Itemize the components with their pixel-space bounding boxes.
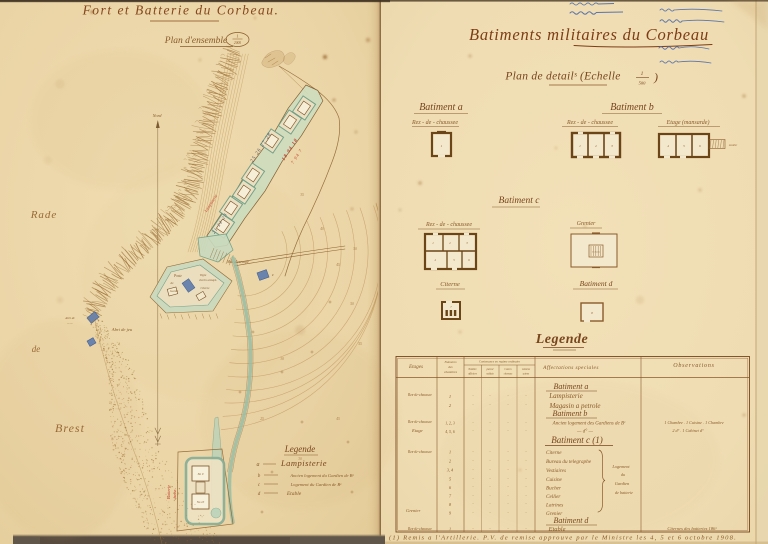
svg-text:Grenier: Grenier (577, 221, 596, 227)
svg-text:Brest: Brest (55, 421, 85, 435)
svg-text:chevaux: chevaux (504, 373, 513, 376)
svg-text:No 9: No 9 (197, 472, 204, 476)
svg-text:2: 2 (449, 459, 451, 464)
svg-text:Cellier: Cellier (546, 494, 561, 500)
svg-text:electro-semaph.: electro-semaph. (199, 279, 217, 282)
svg-text:Citerne: Citerne (440, 281, 460, 288)
svg-text:Batiment a: Batiment a (554, 382, 589, 391)
svg-text:Grenier: Grenier (406, 508, 421, 513)
svg-text:6: 6 (699, 144, 701, 148)
svg-text:soldats: soldats (486, 373, 493, 376)
svg-text:): ) (653, 70, 658, 84)
svg-text:du: du (621, 472, 625, 477)
svg-text:Mur d'escarpe: Mur d'escarpe (226, 260, 249, 264)
svg-text:1: 1 (236, 34, 238, 39)
svg-text:Batiments militaires du Cor: Batiments militaires du Corbeau (469, 25, 709, 44)
svg-text:Poste: Poste (173, 274, 182, 278)
svg-text:chambres: chambres (444, 370, 458, 374)
svg-text:25: 25 (260, 417, 264, 421)
svg-text:1: 1 (641, 71, 644, 77)
svg-text:de: de (32, 344, 41, 354)
svg-text:45: 45 (336, 417, 340, 421)
svg-text:9 citerne: 9 citerne (592, 251, 600, 254)
svg-text:Rez - de - chaussee: Rez - de - chaussee (425, 222, 472, 228)
svg-text:Etable: Etable (286, 491, 302, 497)
svg-text:30: 30 (280, 357, 284, 361)
svg-text:escalier: escalier (729, 144, 738, 147)
svg-text:5: 5 (449, 477, 451, 482)
svg-text:Rez-de-chaussee: Rez-de-chaussee (407, 393, 432, 397)
svg-text:autres: autres (523, 373, 529, 376)
svg-text:Citernes des batteries 186ᶜ: Citernes des batteries 186ᶜ (667, 526, 717, 531)
svg-text:Citerne: Citerne (201, 286, 211, 290)
svg-text:Batiment a: Batiment a (419, 102, 463, 113)
svg-text:Rade: Rade (30, 209, 58, 221)
svg-text:Numeros: Numeros (443, 360, 457, 364)
svg-text:Vestiaires: Vestiaires (546, 468, 566, 474)
svg-text:Etage (mansarde): Etage (mansarde) (666, 119, 710, 126)
svg-text:Etages: Etages (408, 364, 423, 370)
svg-text:35: 35 (300, 193, 304, 197)
svg-text:Rez - de - chaussee: Rez - de - chaussee (411, 120, 458, 126)
svg-text:Batiment d: Batiment d (580, 279, 613, 288)
svg-text:1: 1 (579, 144, 581, 148)
svg-text:2000: 2000 (234, 41, 241, 45)
svg-text:1: 1 (449, 394, 451, 399)
svg-text:5: 5 (683, 144, 685, 148)
svg-text:Rez-de-chaussee: Rez-de-chaussee (407, 450, 432, 454)
svg-text:Contenance en regime ordinaire: Contenance en regime ordinaire (479, 360, 521, 364)
svg-text:officiers: officiers (468, 373, 477, 376)
svg-text:2 d° . 1 Cabinet d°: 2 d° . 1 Cabinet d° (672, 428, 704, 433)
svg-text:Logement du Gardien de Bᵉ: Logement du Gardien de Bᵉ (290, 482, 343, 487)
svg-text:Bureau du telegraphe: Bureau du telegraphe (546, 459, 592, 465)
svg-text:50: 50 (353, 247, 357, 251)
svg-text:c: c (272, 272, 274, 277)
svg-text:voitures: voitures (522, 368, 530, 371)
svg-text:1: 1 (441, 144, 443, 148)
svg-text:parcal: parcal (486, 368, 494, 371)
svg-text:(1) Remis a l'Artillerie. P.V.: (1) Remis a l'Artillerie. P.V. de remise… (389, 535, 737, 542)
svg-text:Garde: Garde (170, 289, 179, 293)
svg-text:Ancien logement des Gardiens d: Ancien logement des Gardiens de Bᵉ (552, 422, 626, 427)
svg-text:Batiment b: Batiment b (610, 102, 654, 113)
svg-text:No 10: No 10 (196, 500, 205, 504)
svg-text:1: 1 (449, 450, 451, 455)
svg-text:3: 3 (611, 144, 613, 148)
svg-text:Rez-de-chaussee: Rez-de-chaussee (407, 420, 432, 424)
svg-text:Legende: Legende (284, 444, 316, 454)
svg-text:50: 50 (350, 302, 354, 306)
svg-text:Fort et Batterie du Corbea: Fort et Batterie du Corbeau. (82, 3, 280, 18)
svg-text:........: ........ (67, 321, 73, 325)
svg-text:Plan de detailˢ (Echelle: Plan de detailˢ (Echelle (504, 71, 620, 83)
svg-text:de batterie: de batterie (615, 490, 633, 495)
svg-text:Abri de jeu: Abri de jeu (111, 327, 133, 332)
svg-text:55: 55 (358, 342, 362, 346)
svg-text:Legende: Legende (535, 332, 588, 347)
svg-text:Affectations speciales: Affectations speciales (542, 364, 599, 371)
svg-text:basse: basse (172, 489, 177, 498)
svg-text:Lampisterie: Lampisterie (280, 458, 327, 468)
svg-text:Lampisterie: Lampisterie (548, 392, 582, 400)
svg-text:1 Chambre . 1 Cuisine . 1 Ch: 1 Chambre . 1 Cuisine . 1 Chambre (664, 420, 724, 425)
svg-text:Latrines: Latrines (545, 503, 563, 509)
svg-text:40: 40 (320, 227, 324, 231)
svg-text:Batiment d: Batiment d (554, 516, 590, 525)
svg-text:Batiment c: Batiment c (499, 196, 541, 206)
svg-text:a: a (257, 462, 260, 468)
svg-text:4: 4 (667, 144, 669, 148)
svg-text:2: 2 (595, 144, 597, 148)
svg-text:Cavres: Cavres (504, 368, 511, 371)
svg-text:Citerne: Citerne (546, 450, 562, 456)
svg-text:Cuisine: Cuisine (546, 477, 563, 483)
svg-text:Etable: Etable (548, 526, 566, 533)
svg-text:Nombre: Nombre (467, 368, 477, 371)
svg-text:Bucher: Bucher (546, 486, 562, 492)
svg-text:Gardien: Gardien (615, 481, 630, 486)
svg-text:Rez-de-chaussee: Rez-de-chaussee (407, 527, 432, 531)
svg-text:1: 1 (449, 527, 451, 532)
svg-text:Etage: Etage (411, 428, 423, 433)
svg-text:Abri de: Abri de (64, 316, 75, 320)
svg-text:Vigie: Vigie (200, 273, 207, 277)
svg-text:Batiment c (1): Batiment c (1) (551, 435, 602, 445)
svg-text:Nord: Nord (152, 113, 163, 118)
svg-text:Logement: Logement (611, 464, 630, 469)
svg-text:Rez - de - chaussee: Rez - de - chaussee (566, 120, 613, 126)
svg-text:Observations: Observations (673, 363, 715, 369)
svg-text:45: 45 (336, 263, 340, 267)
svg-text:Ancien logement du Gardien de: Ancien logement du Gardien de Bᵉ (289, 473, 354, 478)
svg-text:— d° —: — d° — (576, 430, 593, 435)
svg-text:500: 500 (639, 81, 647, 86)
svg-text:Plan d'ensemble: Plan d'ensemble (164, 36, 227, 46)
svg-text:Batiment b: Batiment b (553, 409, 588, 418)
